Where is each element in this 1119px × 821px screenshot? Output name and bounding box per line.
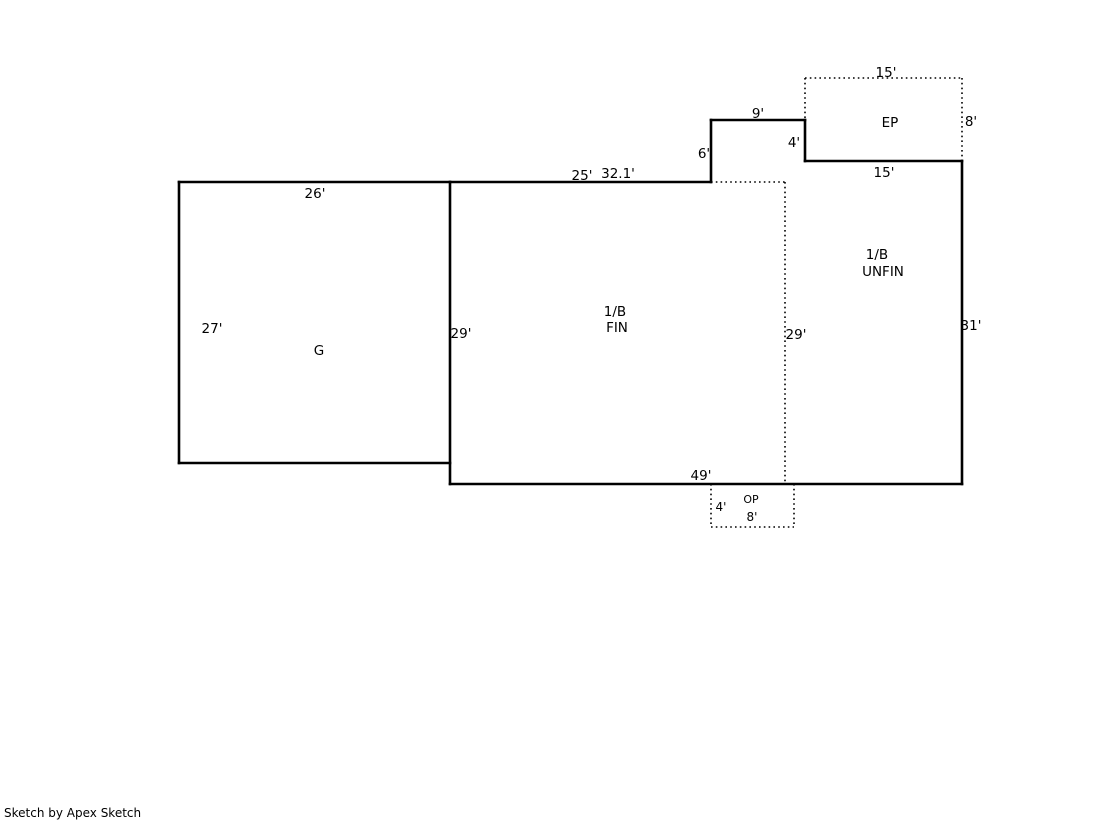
dim-main-top-32-1: 32.1' [601,166,635,182]
branding-credit: Sketch by Apex Sketch [4,806,141,820]
dim-partition-29: 29' [786,327,807,343]
area-label-unfin-line1: 1/B [866,247,888,263]
area-label-ep: EP [882,115,899,131]
dim-ep-width-15: 15' [876,65,897,81]
dim-main-top-25: 25' [572,168,593,184]
area-label-garage: G [314,343,324,359]
dim-notch-drop-4: 4' [788,135,800,151]
dim-garage-width-26: 26' [305,186,326,202]
dim-main-left-29: 29' [451,326,472,342]
dim-main-right-31: 31' [961,318,982,334]
dim-main-bottom-49: 49' [691,468,712,484]
dim-ep-height-8: 8' [965,114,977,130]
area-label-fin-line1: 1/B [604,304,626,320]
apex-sketch-page: 26'27'G29'25'32.1'6'9'4'15'EP8'15'1/BFIN… [0,0,1119,821]
dim-notch-height-6: 6' [698,146,710,162]
area-label-unfin-line2: UNFIN [862,264,904,280]
dim-op-width-8: 8' [747,510,758,524]
dim-op-height-4: 4' [716,500,727,514]
area-label-fin-line2: FIN [606,320,628,336]
dim-ep-bottom-15: 15' [874,165,895,181]
dim-notch-width-9: 9' [752,106,764,122]
area-label-op: OP [743,493,759,506]
floorplan-sketch: 26'27'G29'25'32.1'6'9'4'15'EP8'15'1/BFIN… [0,0,1119,821]
dim-garage-depth-27: 27' [202,321,223,337]
